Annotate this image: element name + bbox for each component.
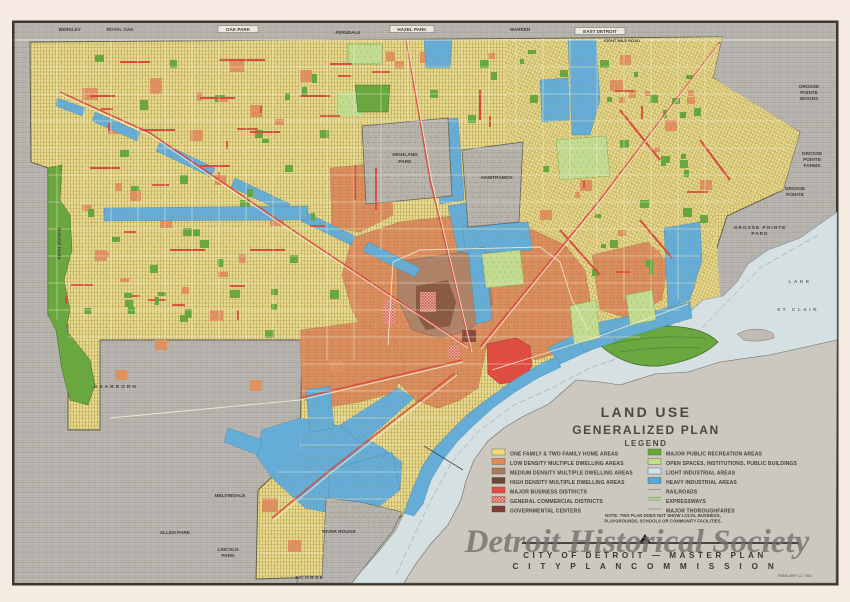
svg-text:RIVER ROUGE: RIVER ROUGE [322, 529, 356, 535]
svg-text:HAMTRAMCK: HAMTRAMCK [481, 175, 513, 181]
svg-text:GOVERNMENTAL CENTERS: GOVERNMENTAL CENTERS [510, 509, 581, 515]
svg-text:GENERAL COMMERCIAL DISTRICTS: GENERAL COMMERCIAL DISTRICTS [510, 499, 603, 505]
svg-text:FARMS: FARMS [804, 163, 822, 169]
svg-text:GROSSE POINTE: GROSSE POINTE [734, 225, 787, 231]
svg-text:OAK PARK: OAK PARK [226, 27, 251, 32]
svg-text:FEBRUARY 12, 1951: FEBRUARY 12, 1951 [778, 574, 812, 578]
svg-text:DEARBORN: DEARBORN [94, 384, 138, 390]
svg-text:FERNDALE: FERNDALE [335, 30, 360, 35]
svg-text:BERKLEY: BERKLEY [59, 27, 81, 32]
svg-text:POINTE: POINTE [786, 192, 805, 198]
svg-text:POINTE: POINTE [803, 157, 822, 163]
svg-text:LOW DENSITY MULTIPLE DWELLING: LOW DENSITY MULTIPLE DWELLING AREAS [510, 461, 624, 467]
svg-text:LINCOLN: LINCOLN [217, 547, 239, 553]
svg-text:EAST DETROIT: EAST DETROIT [583, 29, 617, 34]
svg-text:MEDIUM DENSITY MULTIPLE DWELLI: MEDIUM DENSITY MULTIPLE DWELLING AREAS [510, 471, 633, 477]
svg-text:ST CLAIR: ST CLAIR [777, 307, 819, 313]
svg-text:MELVINDALE: MELVINDALE [215, 493, 247, 499]
svg-text:EIGHT MILE ROAD: EIGHT MILE ROAD [604, 38, 640, 43]
svg-text:ONE FAMILY & TWO FAMILY HOME A: ONE FAMILY & TWO FAMILY HOME AREAS [510, 452, 619, 458]
svg-text:Detroit Historical Society: Detroit Historical Society [464, 524, 810, 560]
svg-text:OPEN SPACES, INSTITUTIONS, PUB: OPEN SPACES, INSTITUTIONS, PUBLIC BUILDI… [666, 461, 797, 467]
svg-text:MAJOR PUBLIC RECREATION AREAS: MAJOR PUBLIC RECREATION AREAS [666, 452, 763, 458]
svg-text:HIGH DENSITY MULTIPLE DWELLING: HIGH DENSITY MULTIPLE DWELLING AREAS [510, 480, 625, 486]
svg-text:C I T Y P L A N C O M: C I T Y P L A N C O M M I S S I O N [512, 562, 777, 571]
svg-text:WARREN: WARREN [510, 27, 531, 32]
svg-text:MAJOR BUSINESS DISTRICTS: MAJOR BUSINESS DISTRICTS [510, 490, 588, 496]
svg-text:GROSSE: GROSSE [799, 84, 820, 90]
svg-text:PLAYGROUNDS, SCHOOLS OR COMMUN: PLAYGROUNDS, SCHOOLS OR COMMUNITY FACILI… [604, 519, 721, 524]
svg-text:PARK: PARK [398, 159, 412, 165]
svg-text:ECORSE: ECORSE [295, 575, 324, 581]
svg-text:LIGHT INDUSTRIAL AREAS: LIGHT INDUSTRIAL AREAS [666, 471, 736, 477]
svg-text:RAILROADS: RAILROADS [666, 490, 698, 496]
svg-text:LAND USE: LAND USE [601, 404, 692, 420]
svg-text:PARK: PARK [751, 231, 768, 237]
svg-text:POINTE: POINTE [800, 90, 819, 96]
svg-text:GENERALIZED PLAN: GENERALIZED PLAN [572, 423, 720, 437]
svg-text:GROSSE: GROSSE [785, 186, 806, 192]
svg-text:LEGEND: LEGEND [625, 439, 668, 448]
svg-text:HIGHLAND: HIGHLAND [392, 152, 418, 158]
svg-text:GROSSE: GROSSE [802, 151, 823, 157]
svg-text:NOTE: THIS PLAN DOES NOT SHOW: NOTE: THIS PLAN DOES NOT SHOW LOCAL BUSI… [605, 513, 721, 518]
svg-text:HAZEL PARK: HAZEL PARK [397, 27, 427, 32]
svg-text:PARK: PARK [221, 553, 235, 559]
svg-text:ALLEN PARK: ALLEN PARK [160, 530, 191, 536]
svg-text:ROYAL OAK: ROYAL OAK [106, 27, 134, 32]
svg-text:EXPRESSWAYS: EXPRESSWAYS [666, 499, 706, 505]
svg-text:WOODS: WOODS [800, 96, 819, 102]
svg-text:LAKE: LAKE [788, 279, 811, 285]
svg-text:HEAVY INDUSTRIAL AREAS: HEAVY INDUSTRIAL AREAS [666, 480, 737, 486]
